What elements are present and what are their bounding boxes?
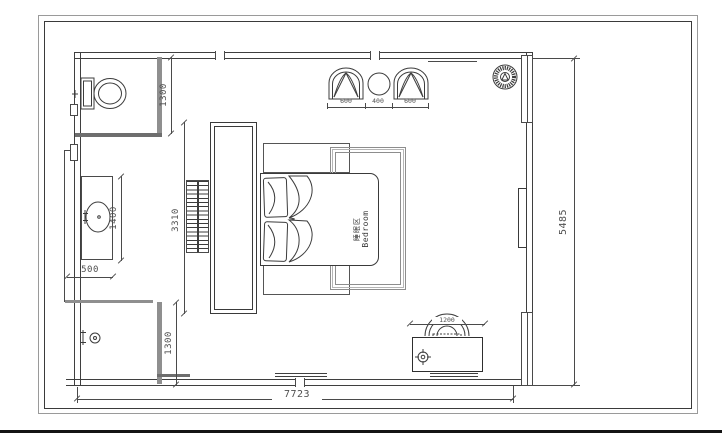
room-label-chinese: 睡眠区 xyxy=(353,197,361,261)
shower-partition-top xyxy=(65,300,153,303)
dim-line-seating xyxy=(327,107,428,108)
tea-table-icon xyxy=(367,72,391,96)
dim-vanity-w-label: 500 xyxy=(76,265,104,275)
wall-stub-2 xyxy=(70,144,78,161)
dim-ext xyxy=(428,103,429,109)
desk-lamp-target-icon xyxy=(414,348,432,366)
shower-partition-right xyxy=(157,302,162,384)
dim-seat-left-label: 600 xyxy=(334,98,358,105)
louvered-panel xyxy=(186,180,209,253)
dim-ext xyxy=(327,103,328,109)
dim-vanity-len-label: 1400 xyxy=(109,203,119,233)
dim-shower-label: 1300 xyxy=(164,328,174,358)
dim-line-vanity-len xyxy=(121,176,122,261)
dim-height-label: 5485 xyxy=(559,204,569,240)
bathroom-partition-bottom xyxy=(75,133,162,137)
dim-feature-wall-label: 3310 xyxy=(171,205,181,235)
dim-line-vanity-w xyxy=(67,277,113,278)
wall-break-top-1 xyxy=(215,51,225,60)
room-label-english: Bedroom xyxy=(361,197,370,261)
wall-break-bottom-door xyxy=(295,378,305,387)
desk-ledge xyxy=(430,373,478,377)
door-threshold xyxy=(275,373,327,377)
wall-pilaster xyxy=(518,188,527,248)
dim-line-feature-wall xyxy=(184,122,185,314)
window-right-top xyxy=(521,55,533,123)
dim-ext xyxy=(392,103,393,109)
dim-line-bath xyxy=(171,57,172,134)
headboard-inner-panel xyxy=(214,126,253,310)
shower-partition-foot xyxy=(157,374,190,377)
sheet-divider-line xyxy=(0,430,722,433)
window-glass-line xyxy=(527,313,528,385)
dim-line-height xyxy=(574,58,575,385)
floor-plan-canvas: 1300 1400 500 1300 3310 xyxy=(0,0,722,438)
window-glass-line xyxy=(527,56,528,122)
dim-line-desk xyxy=(410,324,485,325)
shower-faucet-icon xyxy=(78,327,106,349)
dim-ext-width-right xyxy=(513,386,514,403)
toilet-icon xyxy=(72,74,130,114)
dim-line-shower xyxy=(176,302,177,385)
headboard-feature-wall xyxy=(210,122,257,314)
wall-break-top-2 xyxy=(370,51,380,60)
dim-desk-label: 1200 xyxy=(432,317,462,324)
dim-bath-label: 1300 xyxy=(159,80,169,110)
dim-seat-right-label: 600 xyxy=(398,98,422,105)
dim-seat-center-label: 400 xyxy=(366,98,390,105)
sink-icon xyxy=(82,198,112,236)
window-right-bottom xyxy=(521,312,533,386)
wall-top xyxy=(74,52,533,59)
dim-width-label: 7723 xyxy=(272,390,322,400)
closet-track-line xyxy=(428,61,477,62)
potted-plant-icon xyxy=(492,64,518,90)
bed-room-label: 睡眠区 Bedroom xyxy=(353,197,373,261)
